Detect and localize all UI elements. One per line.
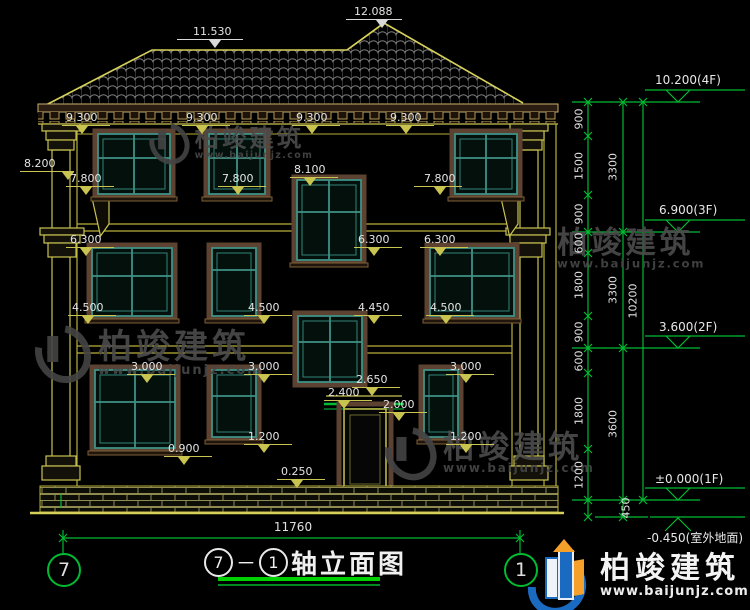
marker-triangle-icon [291, 480, 303, 488]
watermark-name: 柏竣建筑 [195, 126, 314, 150]
elevation-marker: 4.500 [430, 302, 462, 313]
elevation-marker: 9.300 [186, 112, 218, 123]
elevation-marker-label: 2.650 [356, 374, 388, 385]
elevation-marker-label: 0.900 [168, 443, 200, 454]
marker-triangle-icon [304, 178, 316, 186]
marker-line [346, 19, 402, 20]
elevation-marker: 3.000 [450, 361, 482, 372]
marker-triangle-icon [232, 187, 244, 195]
watermark-site: www.baijunjz.com [557, 259, 705, 272]
window-stair-landing [295, 313, 365, 385]
watermark-logo-icon [24, 314, 103, 394]
elevation-marker-label: 9.300 [186, 112, 218, 123]
marker-triangle-icon [393, 413, 405, 421]
window-3f-right [448, 131, 524, 201]
marker-triangle-icon [196, 126, 208, 134]
marker-triangle-icon [258, 375, 270, 383]
brand-logo-icon [527, 547, 591, 605]
marker-triangle-icon [178, 457, 190, 465]
elevation-marker-label: 7.800 [70, 173, 102, 184]
elevation-marker: 3.000 [248, 361, 280, 372]
watermark-text: 柏竣建筑www.baijunjz.com [98, 330, 263, 378]
elevation-marker-label: 7.800 [424, 173, 456, 184]
elevation-marker: 11.530 [193, 26, 232, 37]
marker-triangle-icon [434, 248, 446, 256]
elevation-marker-label: 9.300 [296, 112, 328, 123]
elevation-marker-label: 2.400 [328, 387, 360, 398]
brand-building-block-1 [545, 557, 559, 599]
elevation-marker: 2.650 [356, 374, 388, 385]
elevation-marker-label: 6.300 [424, 234, 456, 245]
marker-triangle-icon [366, 388, 378, 396]
brand-building-block-3 [574, 559, 584, 596]
watermark: 柏竣建筑www.baijunjz.com [386, 426, 595, 481]
marker-triangle-icon [82, 316, 94, 324]
brand-name: 柏竣建筑 [600, 553, 749, 584]
drawing-title: 7 － 1 轴立面图 [204, 544, 407, 581]
elevation-marker: 1.200 [248, 431, 280, 442]
floor-level-label: 6.900(3F) [659, 204, 717, 217]
marker-triangle-icon [80, 187, 92, 195]
dimension-value: 10200 [627, 284, 640, 319]
dimension-value: 3300 [607, 276, 620, 304]
title-underline-thick [218, 577, 380, 581]
elevation-marker: 6.300 [424, 234, 456, 245]
elevation-marker: 2.400 [328, 387, 360, 398]
elevation-marker-label: 3.000 [131, 361, 163, 372]
elevation-marker-label: 4.500 [430, 302, 462, 313]
elevation-marker-label: 9.300 [66, 112, 98, 123]
elevation-marker: 9.300 [390, 112, 422, 123]
elevation-marker-label: 8.100 [294, 164, 326, 175]
elevation-marker: 6.300 [70, 234, 102, 245]
dimension-value: 900 [573, 322, 586, 343]
elevation-marker: 0.250 [281, 466, 313, 477]
floor-level-label: 3.600(2F) [659, 321, 717, 334]
dimension-value: 3300 [607, 153, 620, 181]
dimension-value: 600 [573, 233, 586, 254]
marker-triangle-icon [400, 126, 412, 134]
window-stair-upper [290, 177, 368, 267]
elevation-marker-label: 4.450 [358, 302, 390, 313]
dimension-value: 3600 [607, 410, 620, 438]
marker-triangle-icon [76, 126, 88, 134]
dimension-lines [572, 90, 745, 531]
watermark-site: www.baijunjz.com [195, 151, 314, 161]
elevation-marker: 4.450 [358, 302, 390, 313]
elevation-marker: 9.300 [66, 112, 98, 123]
elevation-marker: 8.200 [24, 158, 56, 169]
grid-bubble-7-label: 7 [58, 559, 70, 581]
title-axis-dash: － [236, 553, 256, 573]
roof [44, 23, 544, 107]
floor-level-label: 10.200(4F) [655, 74, 721, 87]
marker-triangle-icon [258, 316, 270, 324]
dimension-value: 1800 [573, 271, 586, 299]
marker-triangle-icon [338, 401, 350, 409]
elevation-marker-label: 2.000 [383, 399, 415, 410]
dimension-value: 1500 [573, 152, 586, 180]
elevation-marker-label: 11.530 [193, 26, 232, 37]
brand-building-block-2 [558, 550, 574, 600]
dimension-value: 1800 [573, 397, 586, 425]
dimension-value: 600 [573, 351, 586, 372]
elevation-marker-label: 1.200 [248, 431, 280, 442]
watermark-name: 柏竣建筑 [98, 330, 263, 364]
dimension-value: 900 [573, 109, 586, 130]
marker-triangle-icon [80, 248, 92, 256]
elevation-marker: 7.800 [70, 173, 102, 184]
floor-level-label: ±0.000(1F) [655, 473, 723, 486]
grid-bubble-7: 7 [47, 553, 81, 587]
watermark: 柏竣建筑www.baijunjz.com [150, 122, 313, 165]
watermark-logo-icon [375, 417, 447, 491]
marker-triangle-icon [258, 445, 270, 453]
brand-site: www.baijunjz.com [600, 584, 749, 599]
marker-triangle-icon [460, 445, 472, 453]
marker-triangle-icon [209, 40, 221, 48]
elevation-marker-label: 1.200 [450, 431, 482, 442]
elevation-marker: 2.000 [383, 399, 415, 410]
elevation-marker: 0.900 [168, 443, 200, 454]
elevation-marker: 12.088 [354, 6, 393, 17]
marker-triangle-icon [368, 316, 380, 324]
plinth [30, 486, 564, 513]
elevation-marker-label: 4.500 [72, 302, 104, 313]
elevation-marker: 6.300 [358, 234, 390, 245]
marker-triangle-icon [460, 375, 472, 383]
marker-triangle-icon [306, 126, 318, 134]
cad-elevation-drawing: 12.08811.5309.3009.3009.3009.3008.2007.8… [0, 0, 750, 610]
elevation-marker-label: 3.000 [450, 361, 482, 372]
brand-roof-shape [553, 539, 575, 552]
elevation-marker-label: 12.088 [354, 6, 393, 17]
elevation-marker: 3.000 [131, 361, 163, 372]
elevation-marker-label: 8.200 [24, 158, 56, 169]
bottom-dimension-value: 11760 [258, 520, 328, 534]
elevation-marker-label: 7.800 [222, 173, 254, 184]
dimension-value: 1200 [573, 461, 586, 489]
elevation-marker: 4.500 [248, 302, 280, 313]
marker-triangle-icon [141, 375, 153, 383]
elevation-marker-label: 4.500 [248, 302, 280, 313]
marker-triangle-icon [440, 316, 452, 324]
dimension-value: 450 [620, 498, 633, 519]
elevation-marker-label: 6.300 [70, 234, 102, 245]
title-axis-start-bubble: 7 [204, 548, 233, 577]
floor-level-label: -0.450(室外地面) [647, 532, 743, 545]
elevation-marker: 7.800 [222, 173, 254, 184]
elevation-marker-label: 3.000 [248, 361, 280, 372]
grid-bubble-1-label: 1 [515, 559, 527, 581]
elevation-marker: 1.200 [450, 431, 482, 442]
title-text: 轴立面图 [291, 544, 407, 581]
dimension-value: 900 [573, 204, 586, 225]
title-underline-thin [218, 584, 380, 586]
elevation-marker: 8.100 [294, 164, 326, 175]
watermark-site: www.baijunjz.com [98, 364, 263, 378]
title-axis-end-bubble: 1 [259, 548, 288, 577]
marker-triangle-icon [376, 20, 388, 28]
marker-triangle-icon [368, 248, 380, 256]
brand-text: 柏竣建筑 www.baijunjz.com [600, 553, 749, 599]
elevation-marker-label: 6.300 [358, 234, 390, 245]
watermark-text: 柏竣建筑www.baijunjz.com [195, 126, 314, 161]
brand-logo: 柏竣建筑 www.baijunjz.com [527, 547, 749, 605]
elevation-marker: 9.300 [296, 112, 328, 123]
marker-triangle-icon [434, 187, 446, 195]
elevation-marker: 4.500 [72, 302, 104, 313]
elevation-marker: 7.800 [424, 173, 456, 184]
elevation-marker-label: 9.300 [390, 112, 422, 123]
elevation-marker-label: 0.250 [281, 466, 313, 477]
